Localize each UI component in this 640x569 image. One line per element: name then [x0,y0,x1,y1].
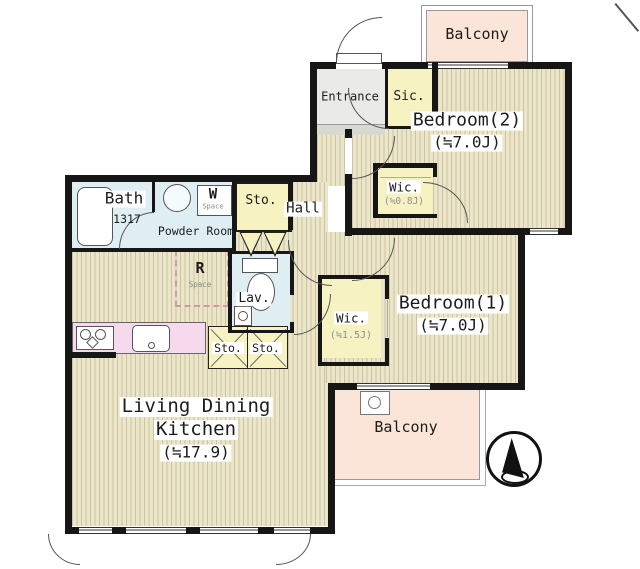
wall-west-top [65,175,317,182]
wall-left [65,175,72,534]
window-balcony-bottom [357,383,430,390]
ldk-size-label: (≒17.9) [160,445,231,462]
ldk-label-line1: Living Dining [120,397,273,417]
bedroom2-label: Bedroom(2) [411,112,523,131]
w-space-label: W [207,188,219,203]
powder-sink-icon [163,184,191,212]
front-door-arc [336,17,382,63]
wall-bottom-pier [310,527,335,534]
storage-hall-label: Sto. [243,194,278,208]
bath-label: Bath [103,191,146,208]
r-space-sub-label: Space [187,281,214,289]
toilet-tank-icon [242,258,278,273]
wall-bottom-pier [112,527,126,534]
wall-lav-left [228,251,232,333]
lav-utility-box [234,306,252,326]
wall-wic-large-right-down [385,338,389,366]
wic-small-rod-line [380,177,431,178]
wall-bedroom2-right [565,62,572,234]
powder-room-label: Powder Room [156,225,236,237]
wall-powder-right [232,178,236,252]
wall-lav-bottom [228,330,294,333]
wall-bedroom1-right [518,228,525,390]
counter-wall-stub [72,352,116,358]
r-space-label: R [193,261,206,277]
window-balcony-top [428,62,508,69]
wall-bath-divider [152,182,155,212]
wall-hall-bedroom2-divider [345,129,352,138]
sink-icon [132,325,170,352]
faucet-circle [368,396,381,409]
bedroom1-label: Bedroom(1) [397,295,509,314]
hall-upper-floor [317,128,345,186]
window-ldk-door-left [79,527,112,534]
compass-icon [486,431,542,487]
ldk-label-line2: Kitchen [154,420,238,440]
wic-small-label: Wic. [387,180,421,193]
window-ldk-1 [126,527,186,534]
wall-lav-top [228,251,294,254]
balcony-faucet-icon [360,391,390,415]
bedroom2-size-label: (≒7.0J) [431,135,502,152]
window-ldk-2 [200,527,258,534]
hall-label: Hall [284,202,322,217]
entrance-label: Entrance [319,91,381,104]
wic-large-fold-line [387,300,388,337]
stove-icon [76,326,114,350]
wall-wic-large-right-up [385,275,389,299]
wall-wic-small-right-stub [433,163,437,177]
wall-hall-bedroom2-divider [345,174,352,236]
drain-icon [148,342,155,349]
terrace-door-arc-right [276,534,311,565]
terrace-door-arc-left [48,534,80,565]
balcony-bottom-label: Balcony [372,420,439,436]
lav-utility-circle [238,311,248,321]
window-ldk-door-right [274,527,310,534]
wic-small-size-label: (≒0.8J) [382,197,426,207]
wall-bottom-pier [258,527,274,534]
storage-a-label: Sto. [212,342,244,354]
bedroom1-size-label: (≒7.0J) [417,318,488,335]
floor-plan: Balcony Entrance Sic. Bedroom(2) (≒7.0J)… [0,0,640,569]
w-space-sub-label: Space [200,203,225,210]
burner-icon [95,329,106,340]
sic-label: Sic. [391,90,426,104]
wall-ldk-right [328,383,335,534]
wall-bottom-pier [65,527,79,534]
balcony-partition-line [614,3,639,32]
wic-large-size-label: (≒1.5J) [328,331,374,342]
balcony-top-label: Balcony [443,27,510,43]
wall-bottom-pier [186,527,200,534]
window-bedroom2-bottom [530,228,558,235]
storage-b-label: Sto. [250,342,282,354]
lav-label: Lav. [236,292,271,306]
wic-large-label: Wic. [334,311,368,324]
bath-size-label: 1317 [111,213,143,225]
wall-entrance-left [310,62,317,182]
wall-wic-large-bottom [318,362,389,366]
